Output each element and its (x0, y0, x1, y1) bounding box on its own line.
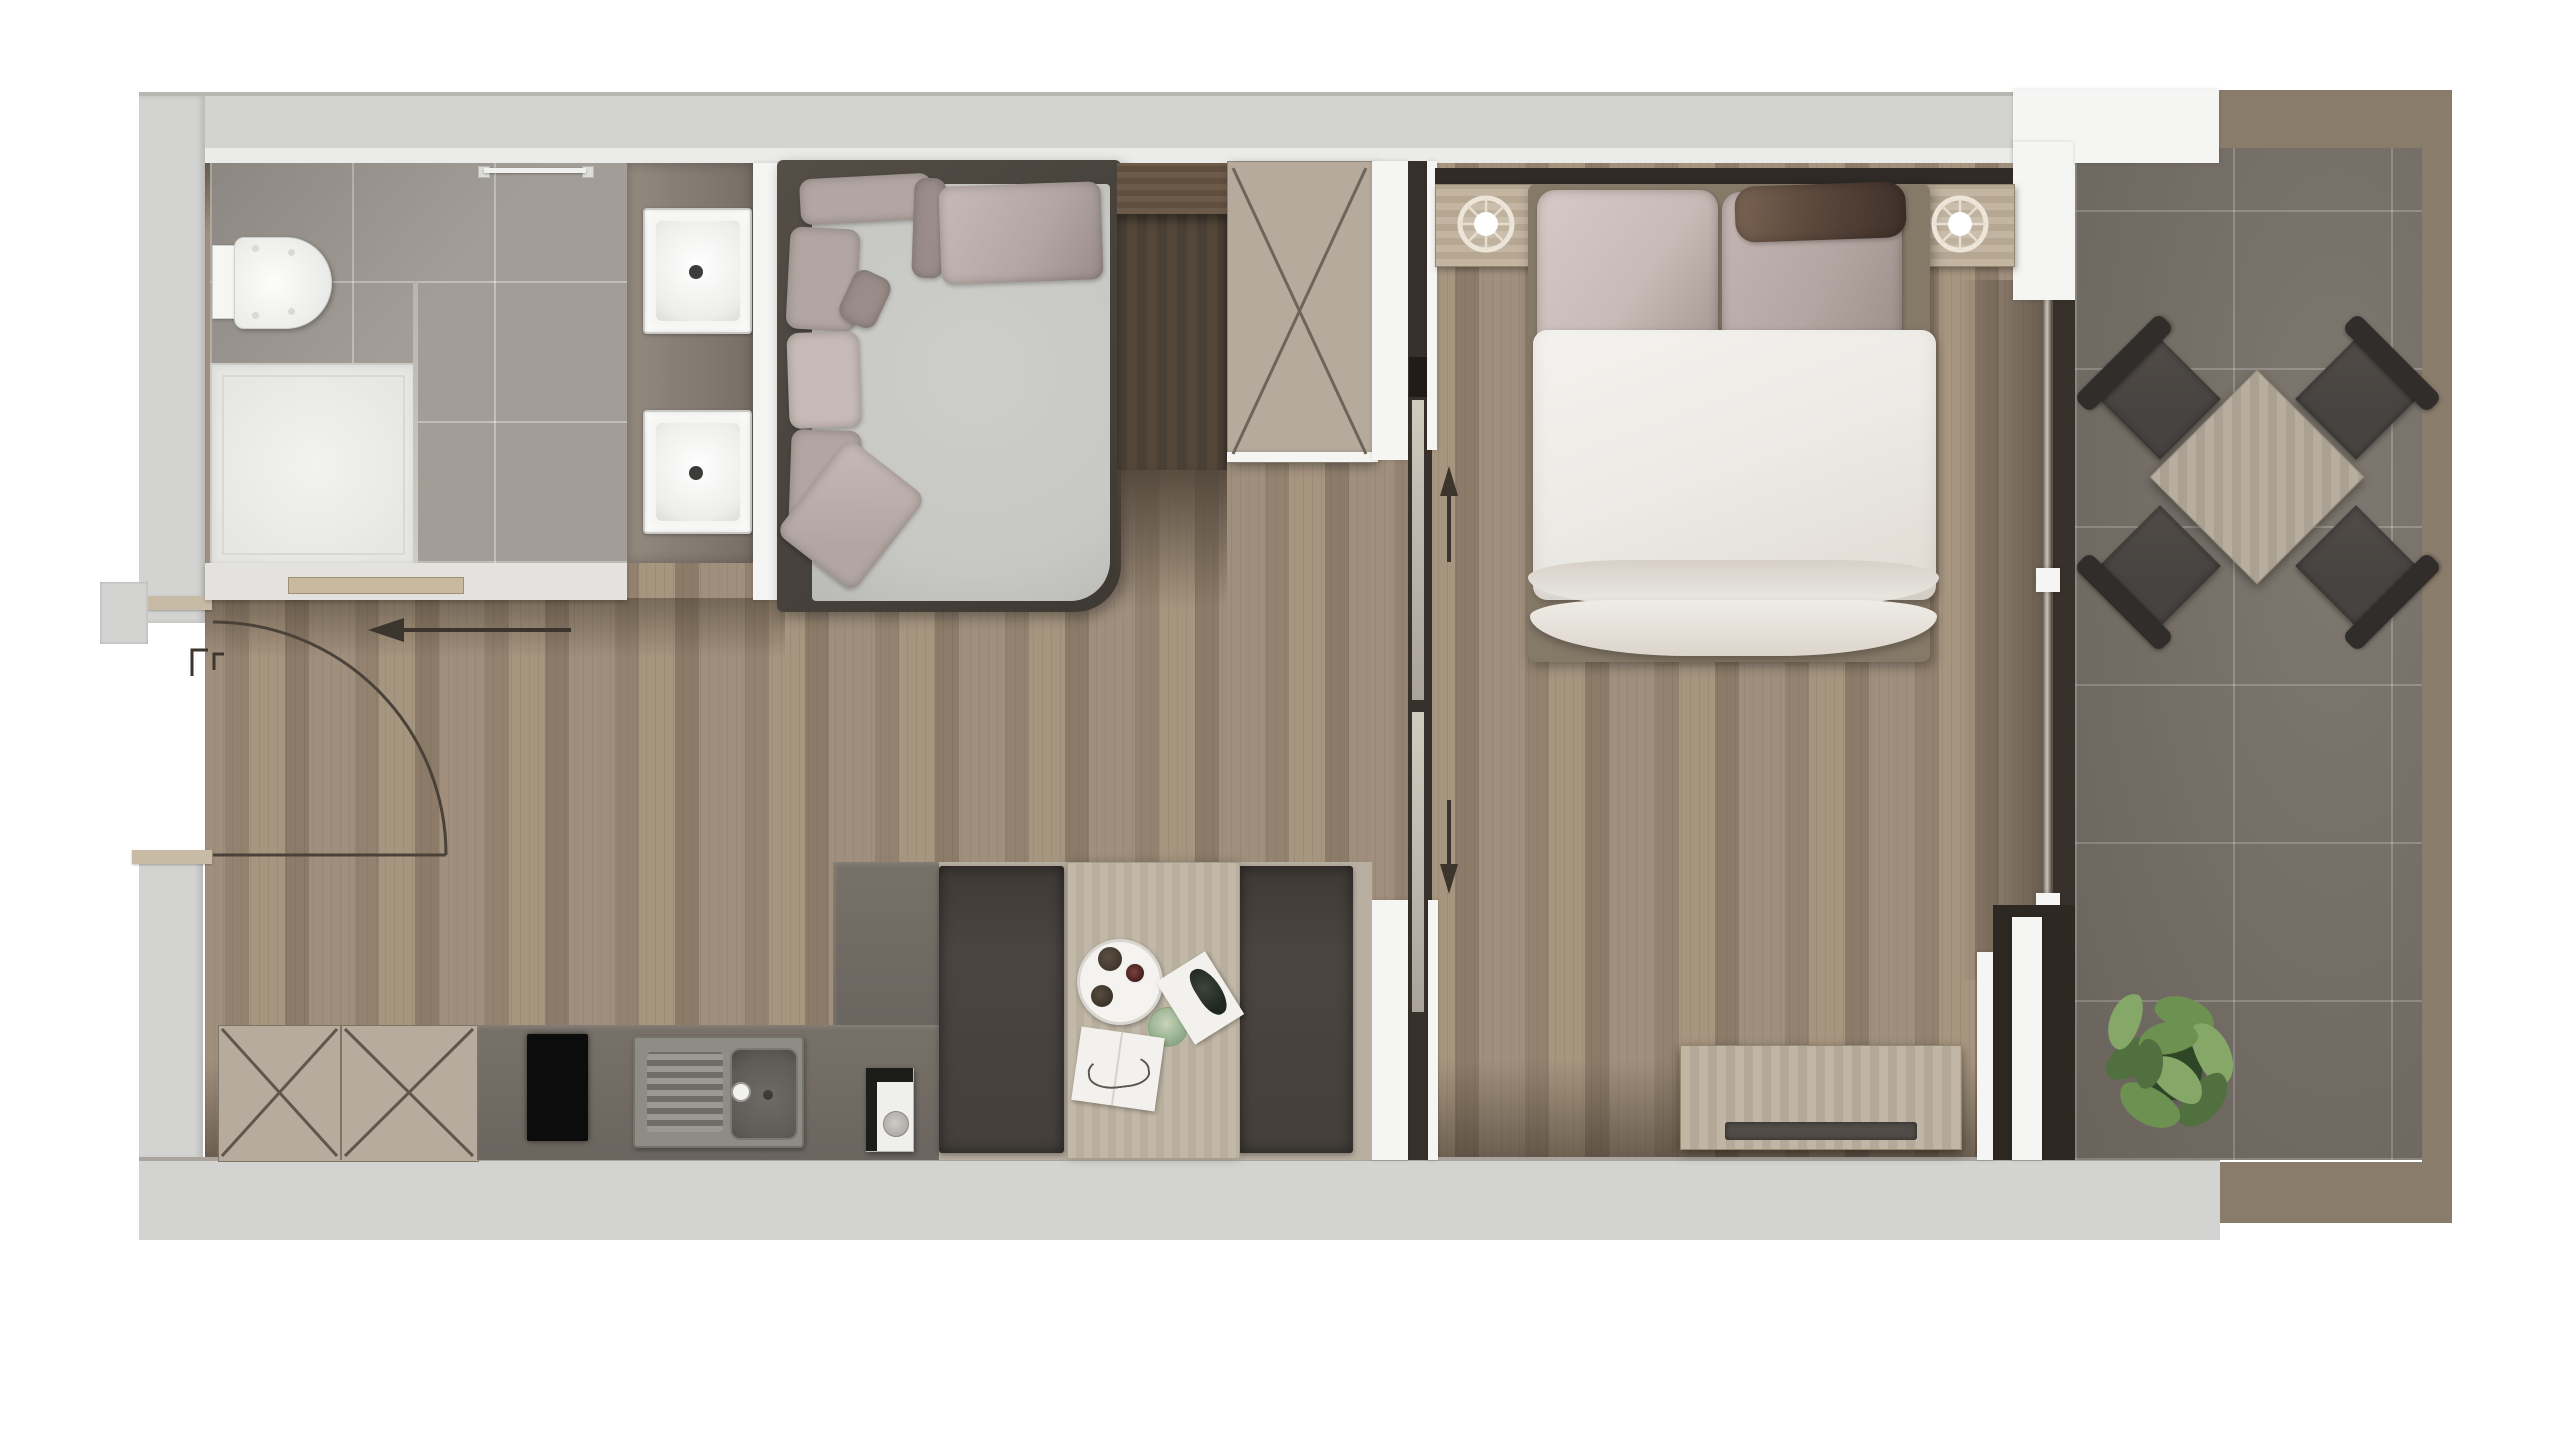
sofa-pillow-3 (938, 181, 1103, 285)
left-wall-lower (139, 856, 203, 1160)
tray-cup-3 (1091, 985, 1113, 1007)
dining-bench-right (1238, 866, 1353, 1153)
bathroom-sink-upper (643, 208, 752, 334)
bathroom-sink-lower (643, 410, 752, 534)
bedroom-wall-pillar-top (2013, 142, 2073, 300)
balcony-border-top (2219, 90, 2452, 150)
bedroom-inner-wall-strip (1977, 952, 1993, 1160)
toilet (212, 237, 332, 327)
bedroom-wall-pillar-bottom (2012, 917, 2042, 1160)
ledge-wood-bar (288, 577, 464, 594)
open-book (1071, 1027, 1164, 1112)
induction-hob (527, 1034, 588, 1141)
tall-cabinet-body (1117, 214, 1227, 470)
kitchen-base-cabinets (218, 1025, 479, 1162)
tv-soundbar (1725, 1122, 1917, 1140)
kitchen-counter-peninsula (833, 862, 939, 1025)
tall-cabinet-top (1117, 163, 1227, 214)
wardrobe (1227, 161, 1374, 463)
faucet-upper (689, 265, 703, 279)
balcony-border-right (2422, 148, 2452, 1223)
sofa-pillow-5 (786, 331, 861, 429)
faucet-lower (689, 466, 703, 480)
hall-bedroom-wall-bottom (1372, 900, 1408, 1160)
nightstand-left (1435, 184, 1539, 267)
tray-cup-2 (1124, 962, 1146, 984)
potted-plant (2094, 992, 2250, 1148)
kitchen-sink-unit (633, 1036, 804, 1148)
door-jamb-strip-bottom (1428, 900, 1438, 1160)
headboard-wall (1435, 168, 2013, 184)
coffee-machine (866, 1068, 914, 1152)
bedroom-floor-shadow-right (1960, 280, 2053, 980)
bed-bolster-dark (1734, 181, 1907, 243)
towel-rail (478, 164, 592, 176)
tray-cup-1 (1098, 947, 1122, 971)
toilet-bowl (234, 237, 332, 329)
balcony-border-bottom (2220, 1162, 2452, 1223)
top-wall-inner-stripe (139, 148, 2219, 163)
pocket-door-leaf-upper (1412, 400, 1424, 700)
window-handle-upper (2036, 568, 2060, 592)
kitchen-cabinet-divider (340, 1025, 342, 1160)
left-wall-upper (139, 96, 205, 623)
dining-bench-left (939, 866, 1064, 1153)
sink-drainboard (647, 1052, 723, 1132)
window-reveal-dark (2053, 300, 2075, 917)
door-jamb-cap-bottom (132, 850, 212, 864)
exterior-wall-tab (100, 582, 148, 644)
shower-glass-screen (413, 281, 418, 563)
hall-bedroom-wall-top (1372, 161, 1408, 460)
sink-faucet (731, 1082, 751, 1102)
shower-tray (210, 363, 417, 567)
sink-drain (763, 1090, 773, 1100)
hall-shadow-under-bathroom (205, 598, 785, 658)
wardrobe-side-strip (1227, 452, 1378, 462)
pocket-door-leaf-lower (1412, 712, 1424, 1012)
floor-plan-stage (0, 0, 2560, 1440)
coffee-cup (883, 1111, 909, 1137)
bottom-wall (139, 1161, 2220, 1240)
tall-cabinet-shadow-fade (1117, 470, 1227, 610)
sliding-window-glass (2043, 300, 2051, 917)
top-wall (139, 96, 2219, 148)
